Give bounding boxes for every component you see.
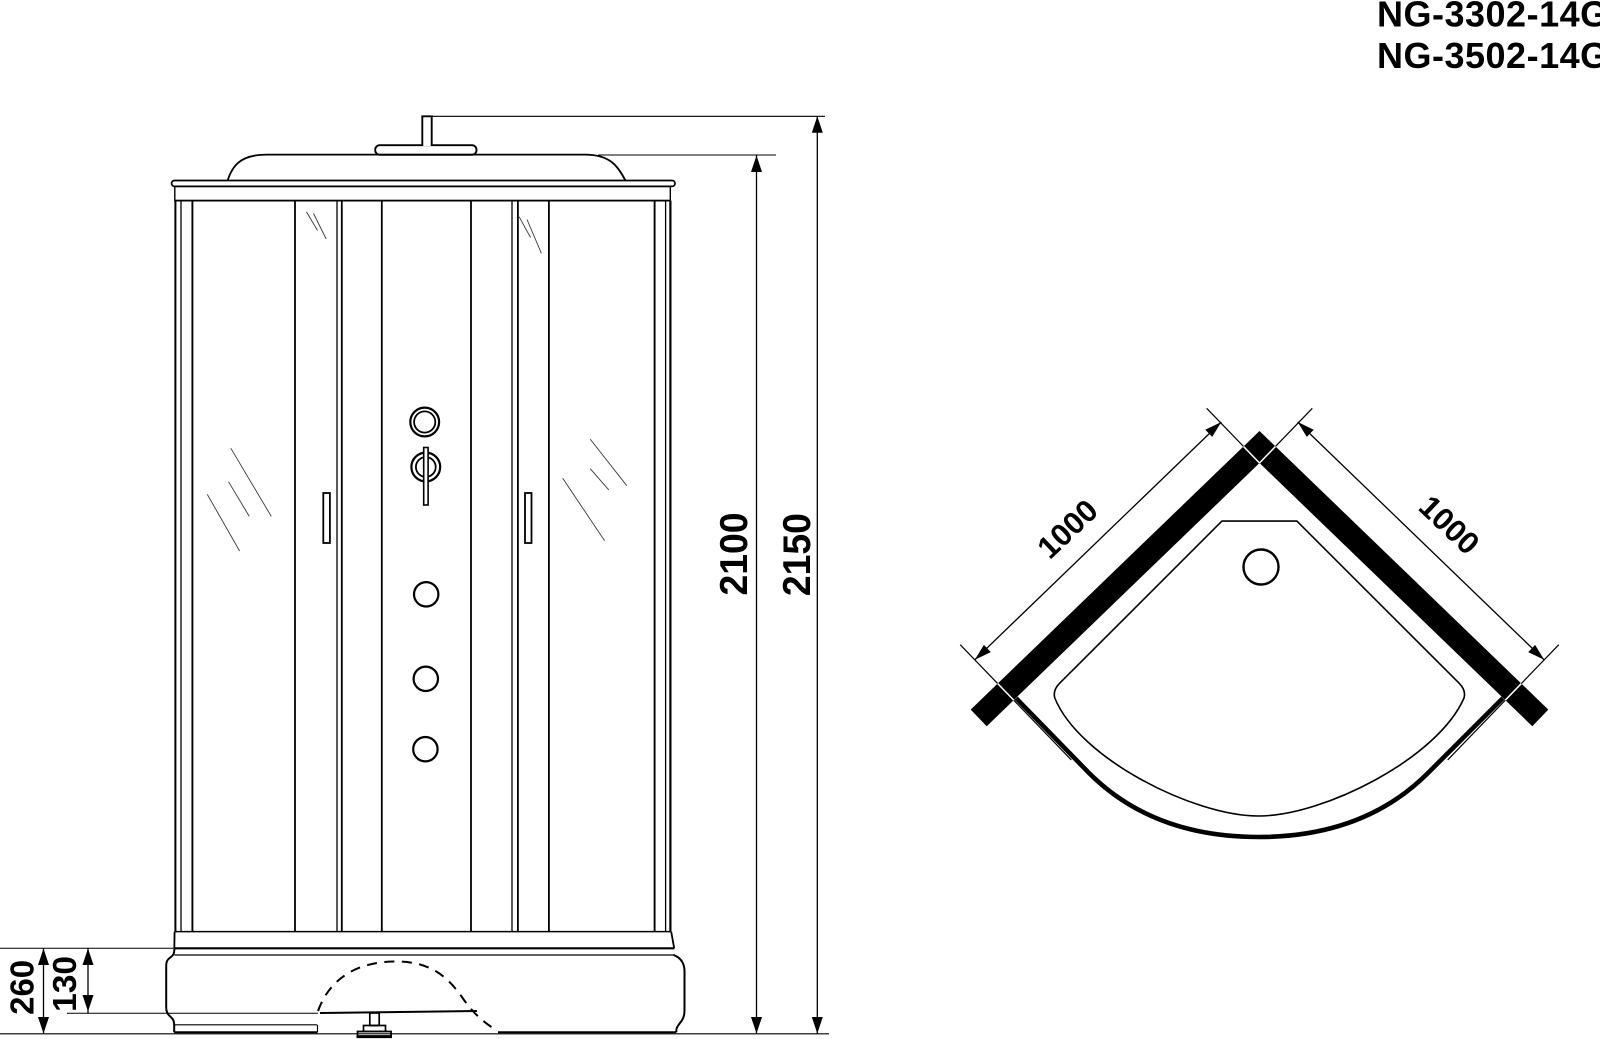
svg-text:260: 260 — [5, 960, 42, 1015]
svg-text:NG-3302-14G: NG-3302-14G — [1377, 0, 1600, 35]
svg-text:130: 130 — [47, 956, 84, 1012]
svg-text:2150: 2150 — [776, 513, 819, 596]
svg-text:2100: 2100 — [713, 513, 756, 596]
svg-text:NG-3502-14G: NG-3502-14G — [1377, 35, 1600, 76]
